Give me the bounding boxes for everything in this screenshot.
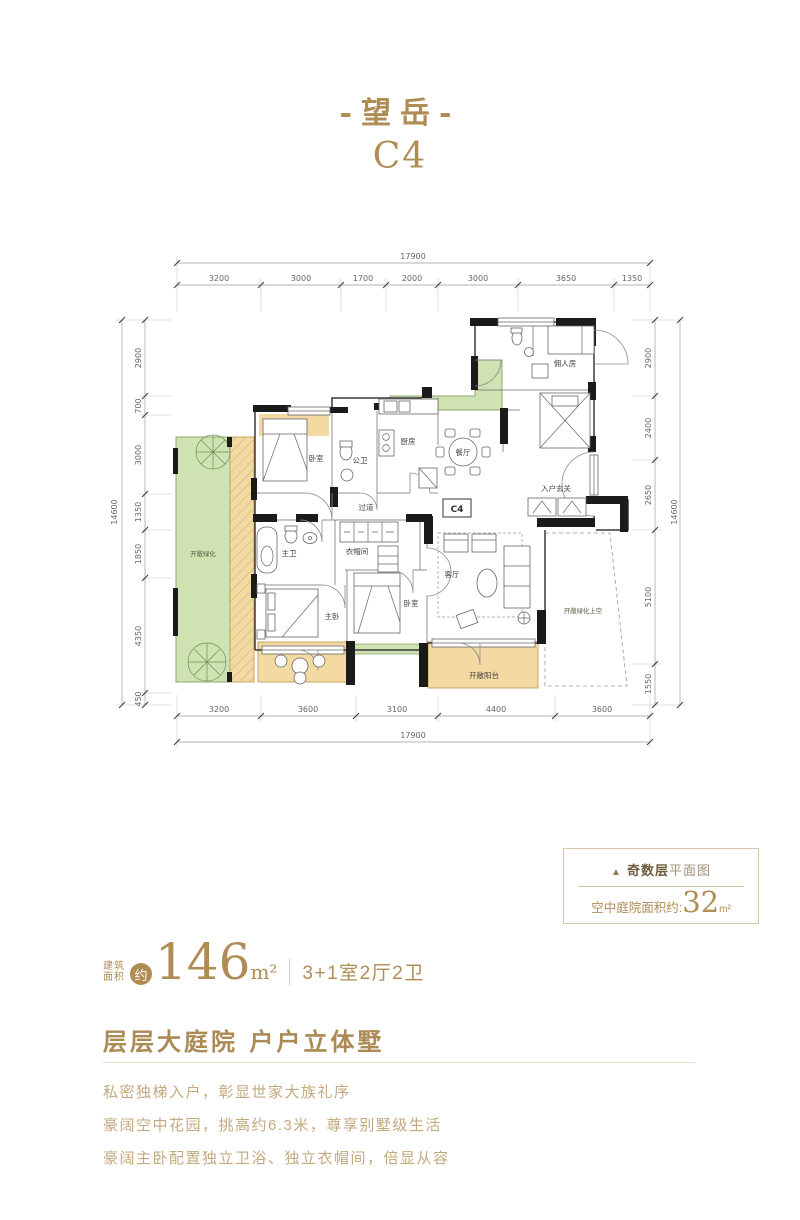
room-label: 主卫 — [282, 548, 297, 558]
dim-label: 2900 — [134, 348, 143, 368]
dim-label: 1350 — [134, 502, 143, 522]
dim-label: 3000 — [468, 274, 488, 283]
dim-label: 1550 — [644, 674, 653, 694]
dim-label: 1700 — [353, 274, 373, 283]
tree-icon — [188, 643, 226, 681]
dim-label: 3000 — [291, 274, 311, 283]
dim-label: 17900 — [400, 731, 425, 740]
courtyard-unit: m² — [719, 904, 731, 915]
area-divider — [289, 959, 290, 985]
floor-plan: 17900 3200 3000 1700 2000 3000 3650 1350… — [100, 245, 720, 770]
room-label: 入户玄关 — [541, 483, 571, 493]
room-label: 衣帽间 — [346, 546, 369, 556]
dim-label: 3100 — [387, 705, 407, 714]
room-label: 卧室 — [404, 598, 419, 608]
room-label: 卧室 — [309, 453, 324, 463]
dim-label: 17900 — [400, 252, 425, 261]
dim-label: 3600 — [592, 705, 612, 714]
dim-label: 14600 — [110, 499, 119, 524]
tagline-paragraphs: 私密独梯入户，彰显世家大族礼序 豪阔空中花园，挑高约6.3米，尊享别墅级生活 豪… — [103, 1076, 450, 1175]
floor-type-row: ▲奇数层平面图 — [564, 860, 758, 879]
courtyard-value: 32 — [682, 885, 719, 919]
room-label: 过道 — [359, 502, 374, 512]
dim-label: 4400 — [486, 705, 506, 714]
plan-suffix-text: 平面图 — [669, 863, 711, 878]
unit-tag-label: C4 — [451, 505, 464, 515]
dim-label: 700 — [134, 398, 143, 413]
dim-label: 3000 — [134, 445, 143, 465]
slope-hatch — [230, 437, 254, 682]
dim-label: 2900 — [644, 348, 653, 368]
greenery-zone — [176, 437, 230, 682]
dim-label: 2400 — [644, 418, 653, 438]
tagline-line: 私密独梯入户，彰显世家大族礼序 — [103, 1076, 450, 1109]
dim-label: 2000 — [402, 274, 422, 283]
dim-label: 450 — [134, 691, 143, 706]
brochure-page: -望岳- C4 — [0, 0, 800, 1220]
area-category-label: 建筑 面积 — [103, 961, 125, 983]
dim-label: 5100 — [644, 587, 653, 607]
tagline-divider — [103, 1062, 695, 1063]
area-summary: 建筑 面积 约 146m² 3+1室2厅2卫 — [103, 941, 425, 993]
area-number: 146 — [155, 933, 250, 991]
room-label: 厨房 — [401, 436, 416, 446]
area-label-line2: 面积 — [103, 972, 125, 983]
room-label: 公卫 — [353, 456, 368, 465]
room-label: 开敞绿化 — [190, 549, 216, 558]
dim-label: 14600 — [670, 499, 679, 524]
tagline-line: 豪阔主卧配置独立卫浴、独立衣帽间，倍显从容 — [103, 1142, 450, 1175]
dim-label: 3200 — [209, 274, 229, 283]
room-label: 开敞阳台 — [469, 670, 499, 680]
room-label: 开敞绿化上空 — [564, 606, 602, 615]
dim-label: 3200 — [209, 705, 229, 714]
dim-label: 1850 — [134, 544, 143, 564]
room-label: 客厅 — [445, 569, 460, 579]
tree-icon — [196, 435, 230, 469]
dim-label: 3600 — [298, 705, 318, 714]
tagline-line: 豪阔空中花园，挑高约6.3米，尊享别墅级生活 — [103, 1109, 450, 1142]
approx-badge: 约 — [130, 963, 152, 985]
area-value: 146m² — [155, 941, 277, 993]
dim-label: 3650 — [556, 274, 576, 283]
project-title: -望岳- — [0, 88, 800, 132]
room-label: 餐厅 — [456, 448, 471, 457]
dim-label: 1350 — [622, 274, 642, 283]
triangle-up-icon: ▲ — [611, 867, 622, 878]
layout-text: 3+1室2厅2卫 — [302, 958, 424, 985]
courtyard-area-row: 空中庭院面积约:32m² — [564, 892, 758, 916]
room-label: 佣人房 — [554, 358, 577, 368]
dim-label: 2650 — [644, 485, 653, 505]
balcony-zone — [428, 642, 538, 688]
unit-tag: C4 — [443, 499, 471, 517]
tagline-heading: 层层大庭院 户户立体墅 — [103, 1022, 384, 1057]
unit-code-title: C4 — [0, 136, 800, 177]
floor-type-text: 奇数层 — [627, 863, 669, 878]
area-label-line1: 建筑 — [103, 961, 125, 972]
dim-label: 4350 — [134, 626, 143, 646]
floor-type-info-box: ▲奇数层平面图 空中庭院面积约:32m² — [563, 848, 759, 924]
courtyard-label: 空中庭院面积约: — [591, 901, 682, 915]
area-unit: m² — [250, 960, 277, 984]
green-sill — [352, 644, 420, 654]
room-label: 主卧 — [325, 611, 340, 621]
